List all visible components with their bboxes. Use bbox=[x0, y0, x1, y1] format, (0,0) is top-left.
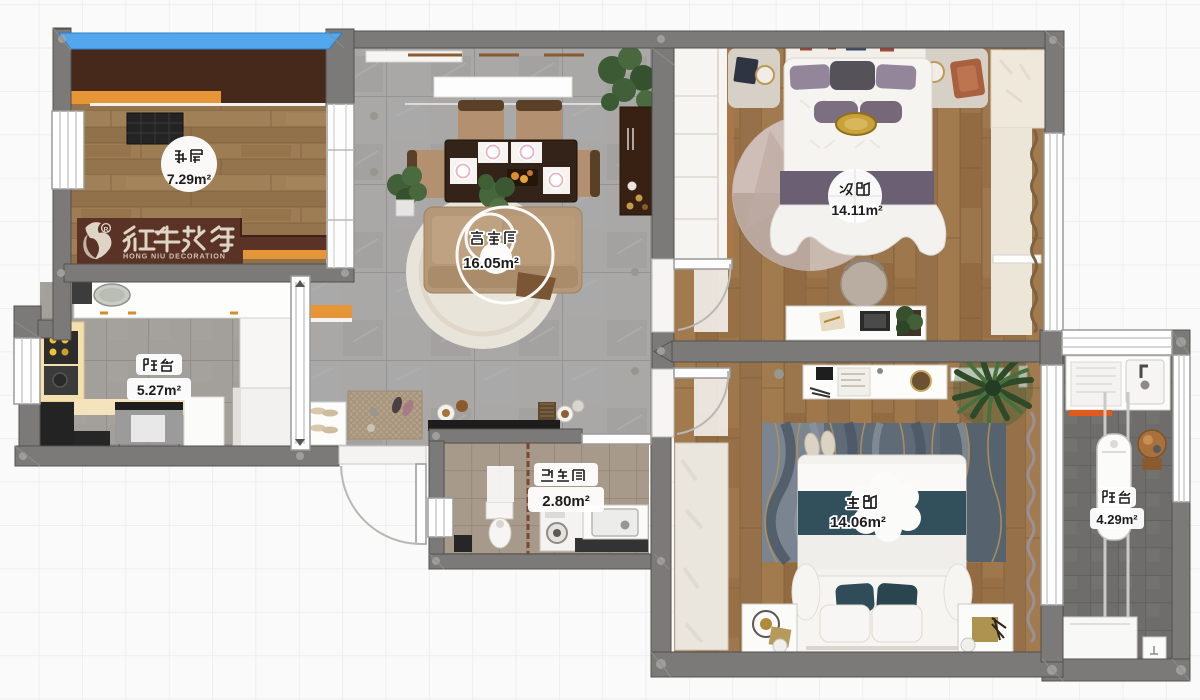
svg-text:2.80m²: 2.80m² bbox=[542, 493, 590, 510]
svg-text:14.06m²: 14.06m² bbox=[830, 514, 886, 531]
svg-text:7.29m²: 7.29m² bbox=[167, 171, 212, 187]
svg-text:R: R bbox=[104, 227, 109, 234]
svg-text:5.27m²: 5.27m² bbox=[137, 382, 182, 398]
svg-text:16.05m²: 16.05m² bbox=[463, 255, 519, 272]
svg-text:4.29m²: 4.29m² bbox=[1096, 512, 1138, 527]
svg-text:HONG NIU DECORATION: HONG NIU DECORATION bbox=[123, 252, 226, 261]
svg-text:14.11m²: 14.11m² bbox=[831, 202, 883, 218]
